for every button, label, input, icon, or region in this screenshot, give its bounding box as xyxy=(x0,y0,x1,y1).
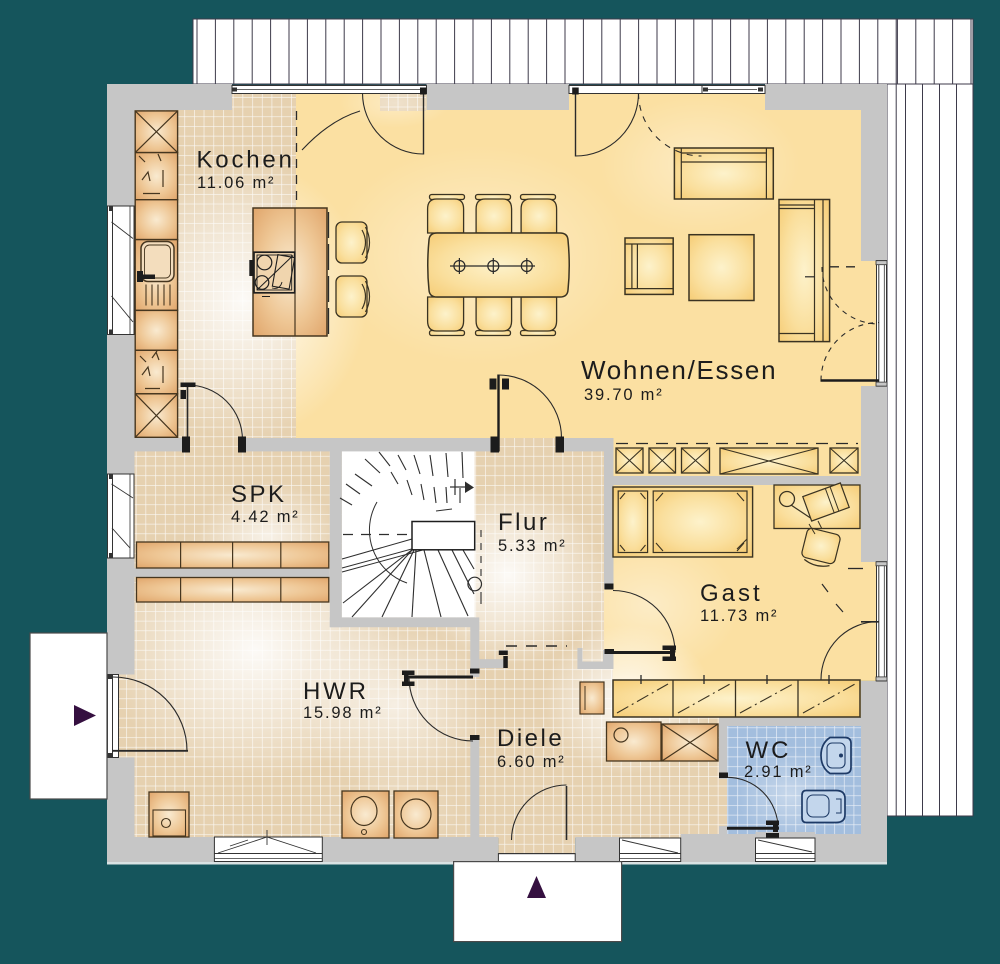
svg-text:6.60 m²: 6.60 m² xyxy=(497,753,566,771)
svg-text:11.06 m²: 11.06 m² xyxy=(197,174,275,192)
svg-text:SPK: SPK xyxy=(231,481,287,508)
svg-text:Diele: Diele xyxy=(497,725,564,752)
svg-text:Wohnen/Essen: Wohnen/Essen xyxy=(581,355,777,385)
svg-text:HWR: HWR xyxy=(303,678,369,705)
svg-text:15.98 m²: 15.98 m² xyxy=(303,704,383,722)
svg-text:Kochen: Kochen xyxy=(197,147,295,174)
svg-text:4.42 m²: 4.42 m² xyxy=(231,508,300,526)
svg-text:WC: WC xyxy=(746,737,792,764)
svg-text:11.73 m²: 11.73 m² xyxy=(700,607,778,625)
svg-text:39.70 m²: 39.70 m² xyxy=(584,386,664,404)
svg-text:Gast: Gast xyxy=(700,580,763,607)
svg-text:Flur: Flur xyxy=(498,509,549,536)
svg-text:2.91 m²: 2.91 m² xyxy=(744,763,813,781)
svg-text:5.33 m²: 5.33 m² xyxy=(498,537,567,555)
